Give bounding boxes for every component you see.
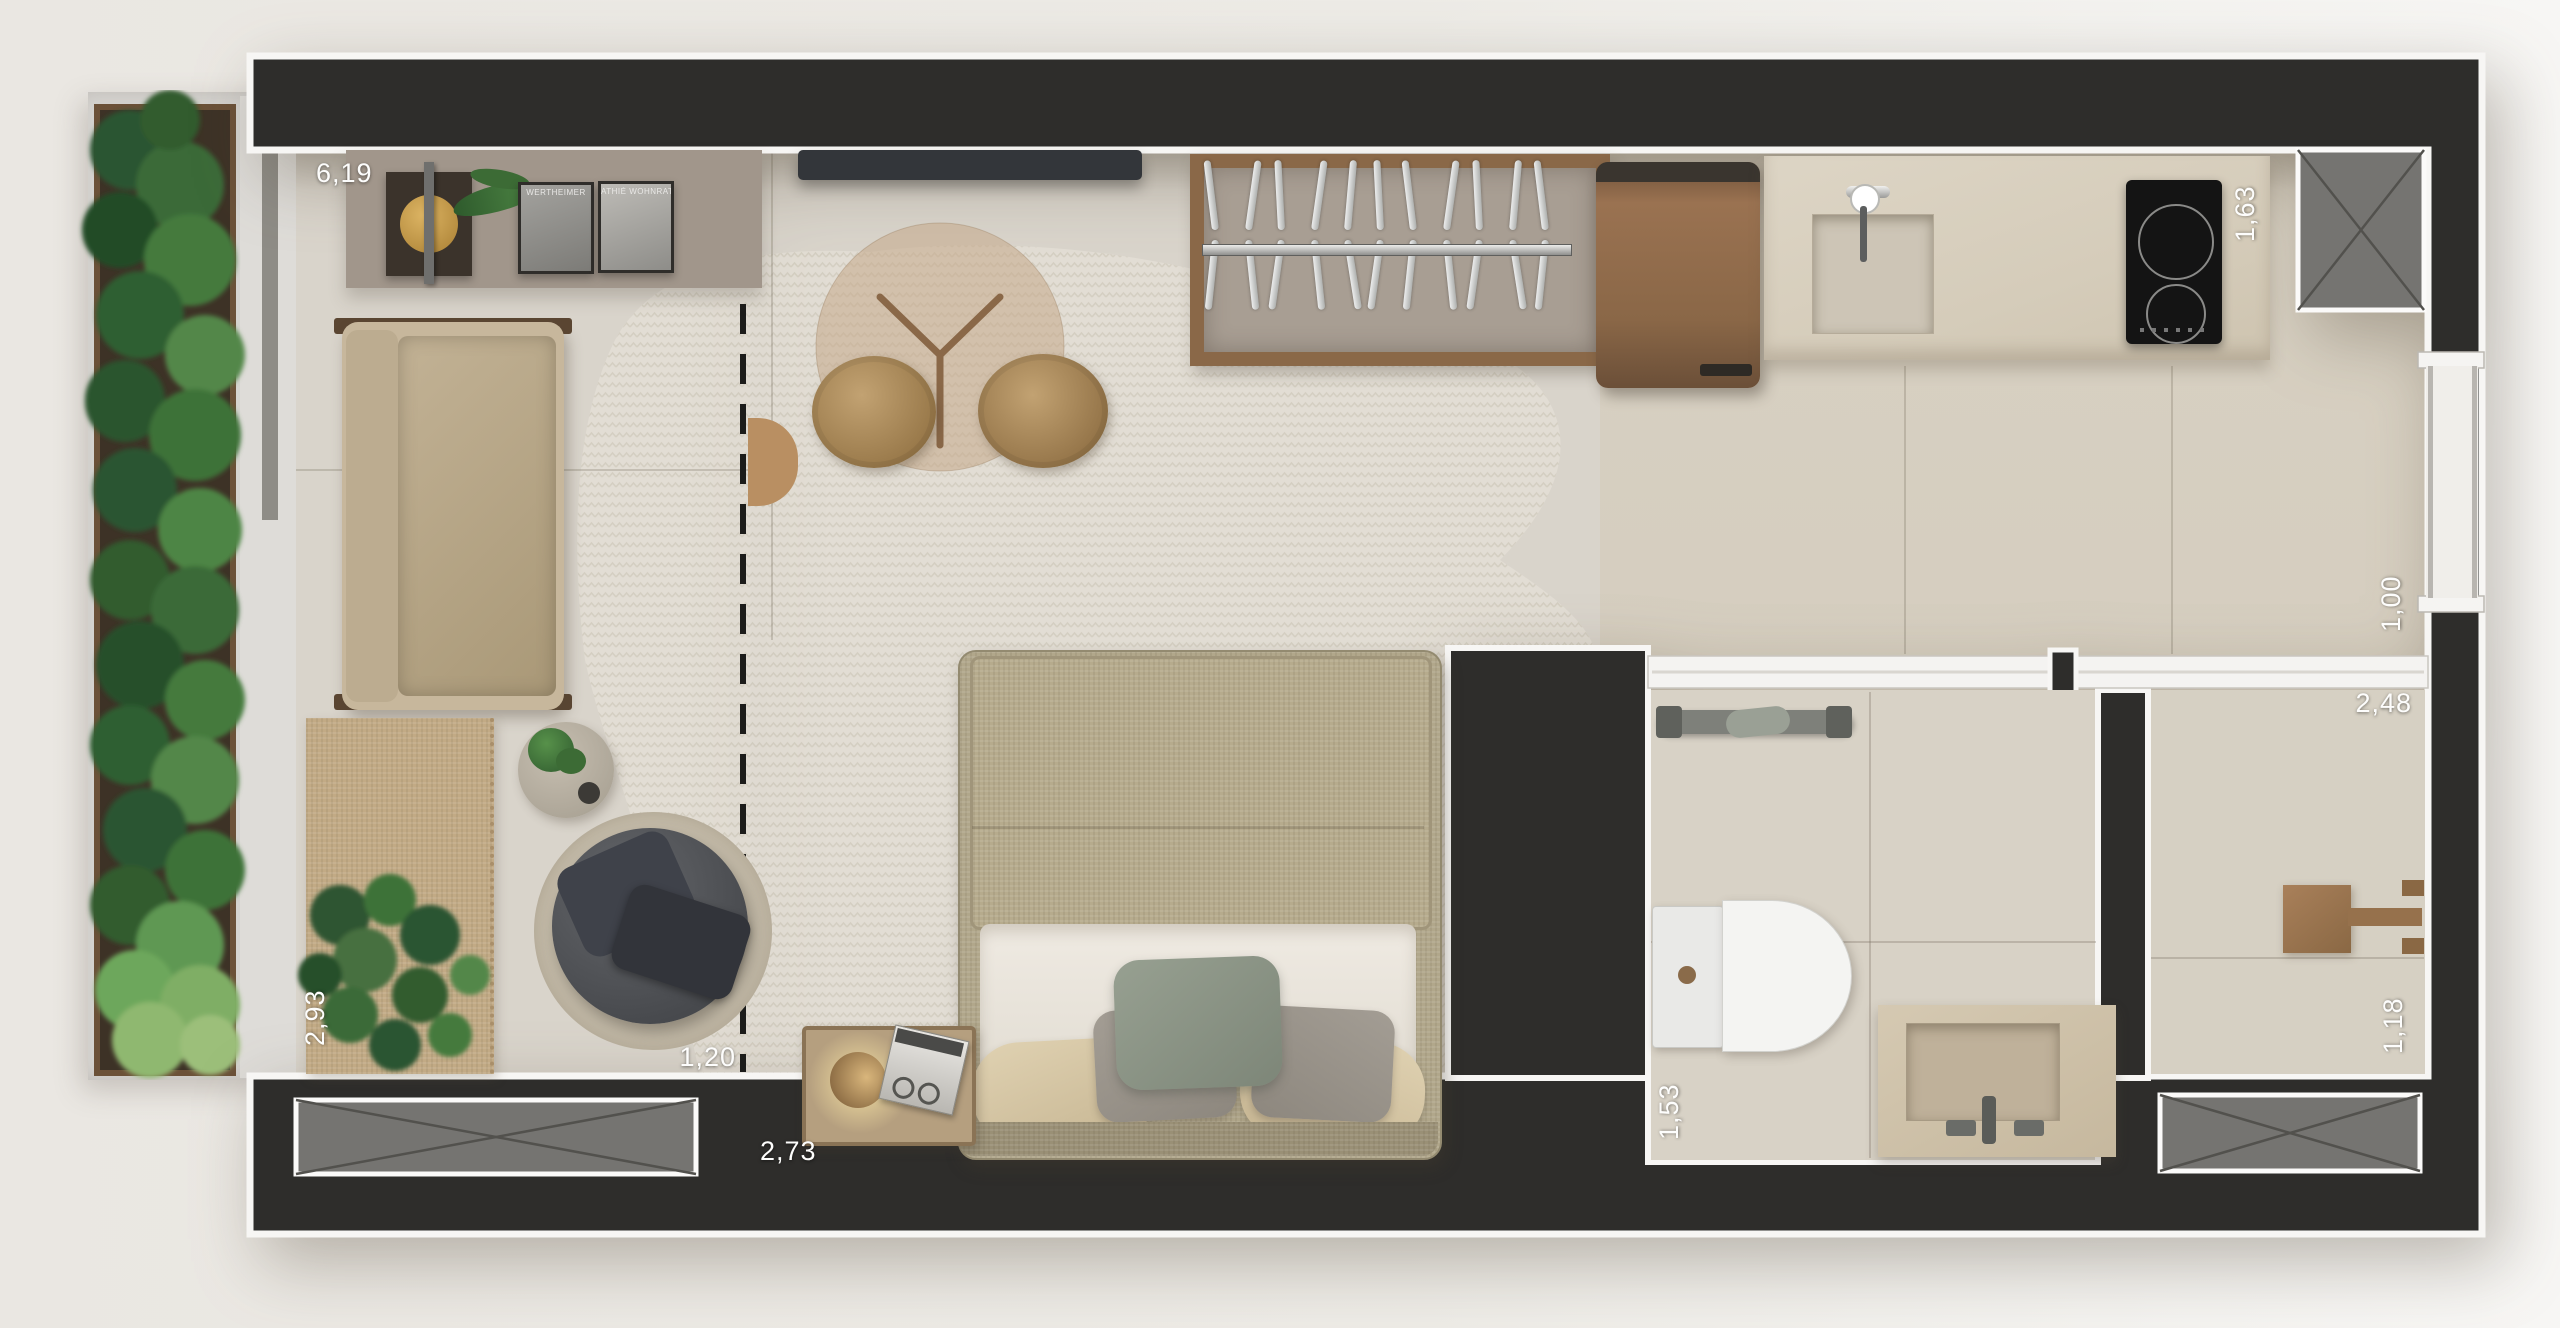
shower-bracket-left xyxy=(1656,706,1682,738)
side-table-plant-leaf xyxy=(556,748,586,774)
sofa-back-cushion xyxy=(346,330,398,702)
burner-large xyxy=(2138,204,2214,280)
art-frame-left-caption: WERTHEIMER xyxy=(521,188,591,197)
wardrobe-rack xyxy=(1190,154,1610,366)
hanger xyxy=(1377,160,1385,310)
hanger xyxy=(1410,160,1418,310)
art-frame-right: ATHIÉ WOHNRATH xyxy=(598,181,674,273)
shower-bracket-right xyxy=(1826,706,1852,738)
foldout-bracket-bottom xyxy=(2402,938,2424,954)
closet-rail xyxy=(1202,244,1572,256)
dim-bathroom-depth: 1,53 xyxy=(1654,1062,1696,1162)
floor-plan-canvas: WERTHEIMER ATHIÉ WOHNRATH xyxy=(0,0,2560,1328)
dim-bedroom-width: 2,73 xyxy=(760,1136,817,1167)
burner-small xyxy=(2146,284,2206,344)
sofa-seat xyxy=(398,336,556,696)
foldout-bracket-top xyxy=(2402,880,2424,896)
art-frame-right-caption: ATHIÉ WOHNRATH xyxy=(601,187,671,196)
hanger xyxy=(1311,160,1319,310)
dim-service-width: 2,48 xyxy=(2290,688,2412,719)
hanger xyxy=(1245,160,1253,310)
bed-blanket-seam xyxy=(972,826,1424,829)
bed-foot-band xyxy=(958,1122,1438,1156)
hanger xyxy=(1509,160,1517,310)
vanity-faucet-spout xyxy=(1982,1096,1996,1144)
cooktop xyxy=(2126,180,2222,344)
toilet-flush-button xyxy=(1678,966,1696,984)
pillow-green xyxy=(1113,955,1283,1091)
typewriter-spool-2 xyxy=(916,1080,942,1106)
dim-hall-window: 1,00 xyxy=(2376,548,2418,660)
hanger xyxy=(1278,160,1286,310)
sofa xyxy=(330,314,578,718)
vanity-handle-left xyxy=(1946,1120,1976,1136)
hanger xyxy=(1476,160,1484,310)
foldout-arm xyxy=(2348,908,2422,926)
kitchen-sink xyxy=(1812,214,1934,334)
fridge-top xyxy=(1596,162,1760,182)
dim-living-gap: 1,20 xyxy=(652,1042,736,1073)
dim-service-depth: 1,18 xyxy=(2378,978,2420,1074)
shower-rail xyxy=(1656,710,1852,734)
tv xyxy=(798,150,1142,180)
hanger xyxy=(1443,160,1451,310)
art-frame-left: WERTHEIMER xyxy=(518,182,594,274)
typewriter-spool-1 xyxy=(890,1075,916,1101)
dim-balcony-depth: 2,93 xyxy=(300,968,342,1068)
rattan-pouf-right xyxy=(978,354,1108,468)
hanger xyxy=(1344,160,1352,310)
faucet-spout xyxy=(1860,206,1867,262)
bed xyxy=(952,646,1442,1180)
vanity-handle-right xyxy=(2014,1120,2044,1136)
rattan-pouf-left xyxy=(812,356,936,468)
bed-blanket xyxy=(970,656,1432,930)
side-table-dish xyxy=(578,782,600,804)
dim-kitchen-depth: 1,63 xyxy=(2230,158,2272,270)
art-stand-bar xyxy=(424,162,434,284)
hangers xyxy=(1204,168,1596,352)
table-lamp xyxy=(830,1052,886,1108)
hanger xyxy=(1542,160,1550,310)
fridge xyxy=(1596,162,1760,388)
dim-living-width: 6,19 xyxy=(316,158,373,189)
foldout-table xyxy=(2283,885,2351,953)
cooktop-controls xyxy=(2140,328,2208,332)
hanger xyxy=(1212,160,1220,310)
fridge-handle xyxy=(1700,364,1752,376)
